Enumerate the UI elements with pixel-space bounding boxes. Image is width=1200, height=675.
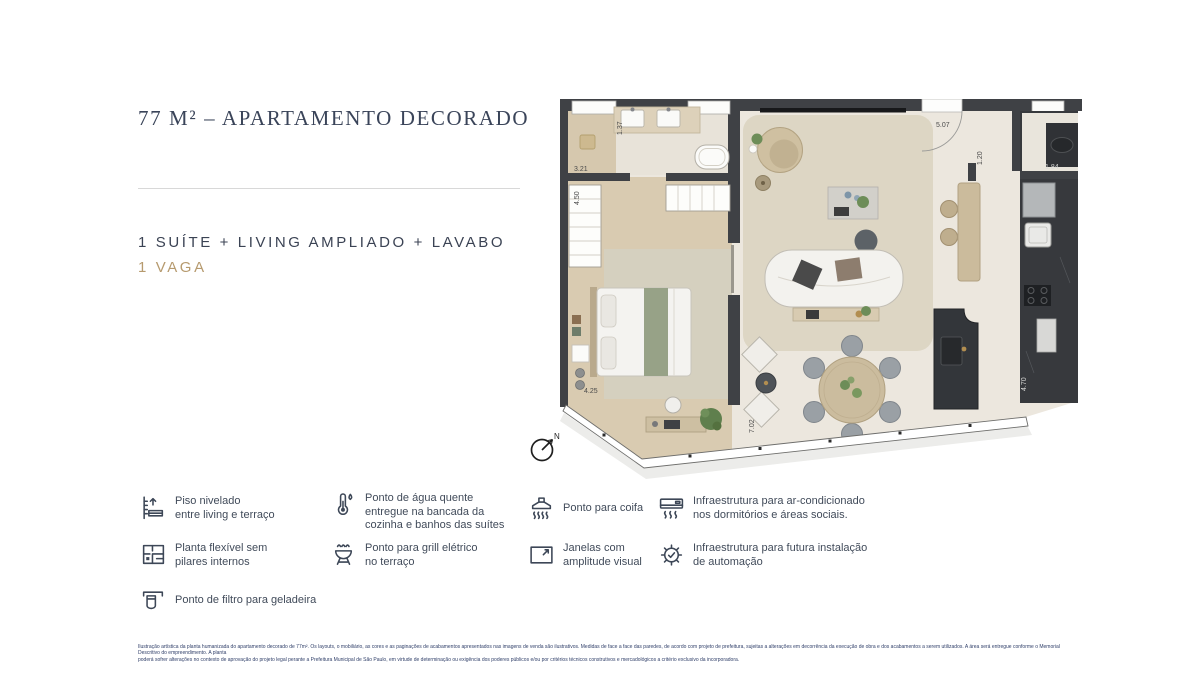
dining-table — [819, 357, 885, 423]
grill-sink — [941, 337, 962, 365]
grill-counter — [934, 309, 978, 409]
hot-water-icon — [330, 491, 357, 519]
dining-chair — [804, 402, 825, 423]
dim-bedroom: 4.25 — [584, 388, 598, 395]
sink — [657, 110, 680, 127]
floorplan: 1.37 3.21 4.50 4.25 5.07 1.20 1.84 4.70 … — [560, 99, 1082, 479]
window-icon — [528, 541, 555, 569]
dim-wardrobe: 4.50 — [574, 191, 581, 205]
cushion — [835, 257, 863, 281]
range-hood-icon — [528, 494, 555, 522]
pillow — [601, 337, 616, 369]
sliding-door — [731, 245, 734, 293]
floorplan-svg: 1.37 3.21 4.50 4.25 5.07 1.20 1.84 4.70 … — [560, 99, 1082, 479]
apartment-features-text: 1 SUÍTE + LIVING AMPLIADO + LAVABO — [138, 234, 505, 251]
counter-board — [1037, 319, 1056, 352]
air-conditioning-icon — [658, 494, 685, 522]
pendant-lamp — [855, 230, 878, 253]
nightstand — [572, 345, 589, 362]
legend-label: Piso nivelado entre living e terraço — [175, 494, 275, 522]
dim-bath-closet: 3.21 — [574, 166, 588, 173]
dim-lavabo: 1.84 — [1045, 164, 1059, 171]
brochure-page: 77 M² – APARTAMENTO DECORADO 1 SUÍTE + L… — [0, 0, 1200, 675]
dining-chair — [880, 402, 901, 423]
floor-level-icon — [140, 494, 167, 522]
dim-kitchen: 4.70 — [1021, 377, 1028, 391]
kitchen — [1020, 111, 1078, 403]
parking-text: 1 VAGA — [138, 259, 207, 276]
bed — [590, 287, 691, 377]
legend-item-coifa: Ponto para coifa — [528, 494, 643, 522]
dim-living-depth: 7.02 — [749, 419, 756, 433]
legend-label: Ponto de filtro para geladeira — [175, 593, 316, 608]
legend-label: Planta flexível sem pilares internos — [175, 541, 267, 569]
legend-label: Infraestrutura para futura instalação de… — [693, 541, 867, 569]
cooktop — [1024, 285, 1051, 306]
closet-stool — [580, 135, 595, 149]
media-console — [828, 187, 878, 219]
legend-item-planta-flexivel: Planta flexível sem pilares internos — [140, 541, 267, 569]
blanket — [644, 288, 668, 376]
tv-panel — [760, 108, 906, 113]
dining-chair — [842, 336, 863, 357]
fridge — [1023, 183, 1055, 217]
page-title: 77 M² – APARTAMENTO DECORADO — [138, 106, 529, 131]
legend-label: Infraestrutura para ar-condicionado nos … — [693, 494, 865, 522]
dim-hall: 1.20 — [977, 151, 984, 165]
laptop — [664, 420, 680, 429]
legal-disclaimer: Ilustração artística da planta humanizad… — [138, 644, 1068, 663]
plant — [752, 134, 763, 145]
disclaimer-line-2: poderá sofrer alterações no contexto de … — [138, 657, 1068, 663]
divider-line — [138, 188, 520, 189]
legend-item-piso-nivelado: Piso nivelado entre living e terraço — [140, 494, 275, 522]
legend-label: Ponto para coifa — [563, 501, 643, 516]
legend-item-ar-condicionado: Infraestrutura para ar-condicionado nos … — [658, 494, 865, 522]
flexible-plan-icon — [140, 541, 167, 569]
dining-chair — [804, 358, 825, 379]
lavabo-sink — [1051, 138, 1073, 153]
automation-icon — [658, 541, 685, 569]
legend-item-agua-quente: Ponto de água quente entregue na bancada… — [330, 491, 504, 533]
entry-door — [922, 99, 962, 112]
legend-item-filtro: Ponto de filtro para geladeira — [140, 586, 316, 614]
faucet — [962, 347, 967, 352]
stool — [941, 229, 958, 246]
legend-item-janelas: Janelas com amplitude visual — [528, 541, 642, 569]
plant — [857, 196, 869, 208]
legend-label: Janelas com amplitude visual — [563, 541, 642, 569]
legend-item-grill: Ponto para grill elétrico no terraço — [330, 541, 478, 569]
window — [572, 101, 616, 114]
disclaimer-line-1: Ilustração artística da planta humanizad… — [138, 644, 1068, 657]
dim-living-width: 5.07 — [936, 122, 950, 129]
stool — [941, 201, 958, 218]
legend-label: Ponto de água quente entregue na bancada… — [365, 491, 504, 533]
dim-vanity: 1.37 — [617, 121, 624, 135]
dining-chair — [880, 358, 901, 379]
fridge-filter-icon — [140, 586, 167, 614]
legend-item-automacao: Infraestrutura para futura instalação de… — [658, 541, 867, 569]
sink — [621, 110, 644, 127]
headboard — [590, 287, 597, 377]
electric-grill-icon — [330, 541, 357, 569]
desk-chair — [665, 397, 681, 413]
legend-label: Ponto para grill elétrico no terraço — [365, 541, 478, 569]
pillow — [601, 295, 616, 327]
plant — [861, 306, 871, 316]
